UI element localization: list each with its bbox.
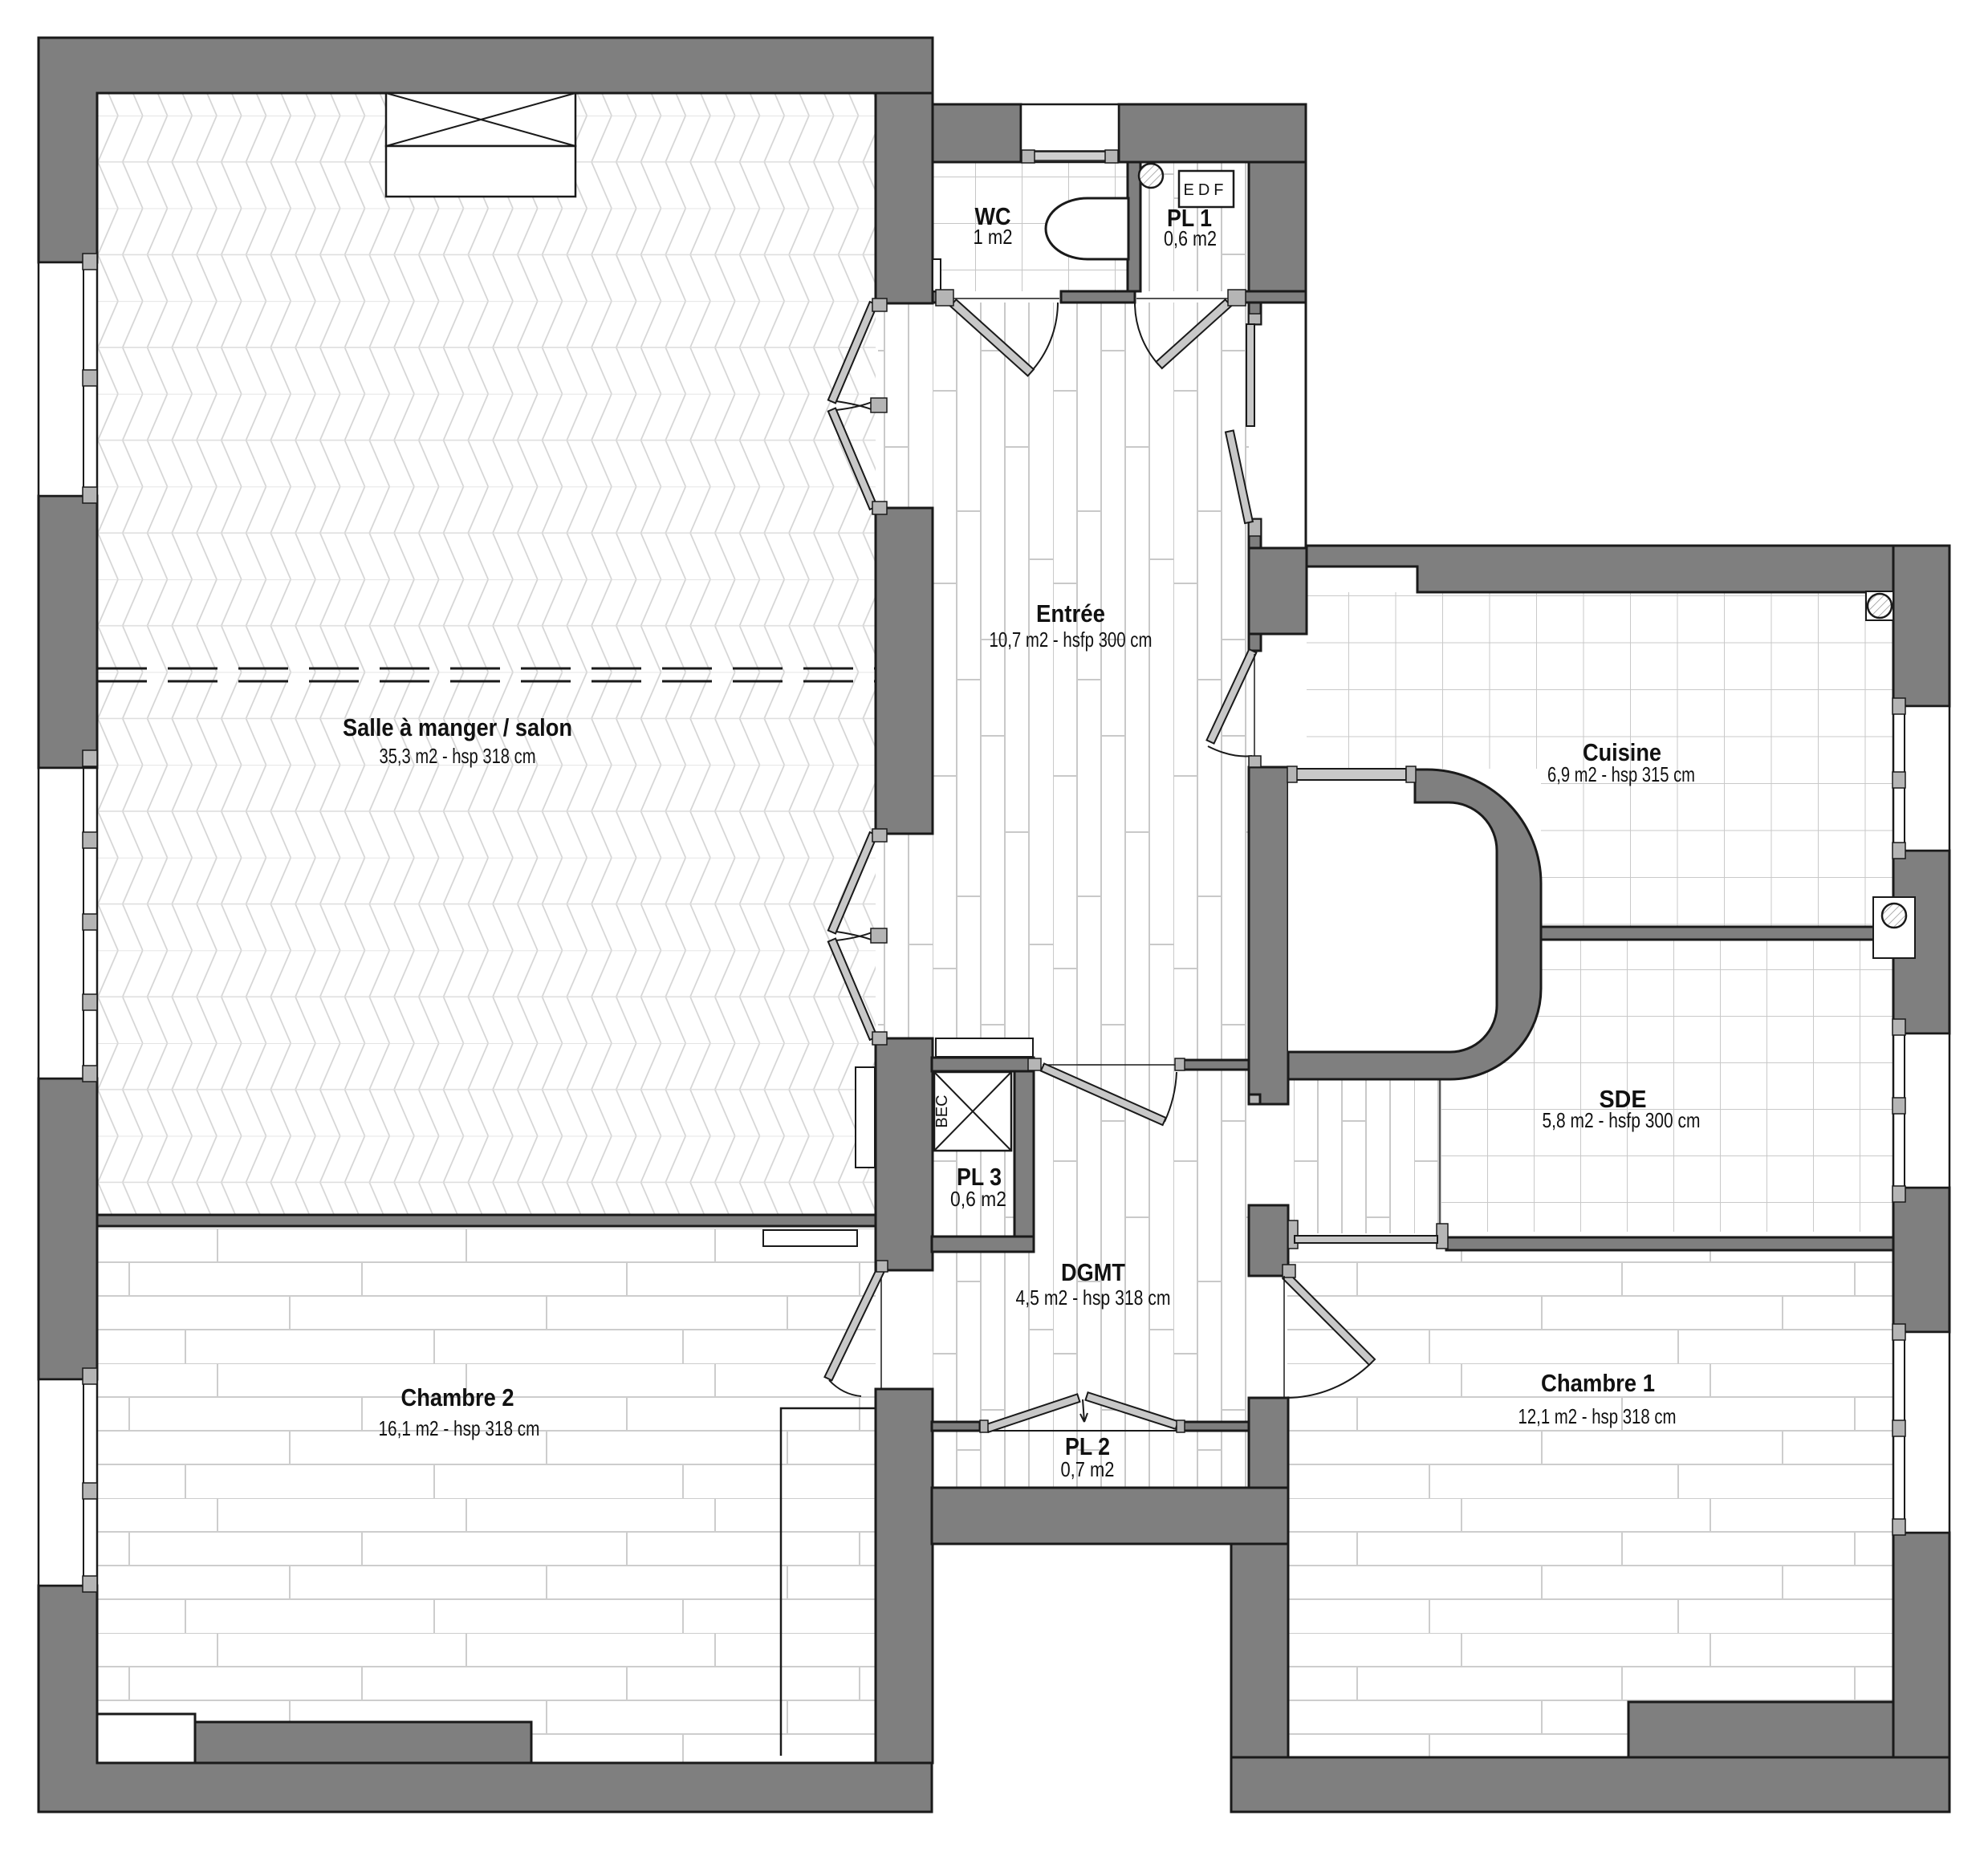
svg-text:Salle à manger / salon: Salle à manger / salon [343,713,572,741]
svg-text:16,1 m2 - hsp 318 cm: 16,1 m2 - hsp 318 cm [379,1416,540,1440]
svg-text:10,7 m2 - hsfp 300 cm: 10,7 m2 - hsfp 300 cm [990,627,1153,652]
svg-text:PL 2: PL 2 [1065,1432,1110,1460]
svg-text:6,9 m2 - hsp 315 cm: 6,9 m2 - hsp 315 cm [1547,762,1695,786]
svg-text:DGMT: DGMT [1061,1258,1125,1286]
svg-text:5,8 m2 - hsfp 300 cm: 5,8 m2 - hsfp 300 cm [1543,1108,1701,1132]
svg-text:Chambre 1: Chambre 1 [1541,1369,1655,1397]
svg-text:0,6 m2: 0,6 m2 [950,1187,1006,1211]
svg-text:EDF: EDF [1184,181,1228,199]
svg-text:4,5 m2 - hsp 318 cm: 4,5 m2 - hsp 318 cm [1016,1285,1171,1310]
svg-text:35,3 m2 - hsp 318 cm: 35,3 m2 - hsp 318 cm [380,744,536,768]
svg-text:Entrée: Entrée [1036,599,1105,627]
svg-text:BEC: BEC [933,1095,951,1127]
svg-text:0,7 m2: 0,7 m2 [1061,1457,1115,1481]
svg-text:0,6 m2: 0,6 m2 [1164,226,1217,250]
svg-text:12,1 m2 - hsp 318 cm: 12,1 m2 - hsp 318 cm [1518,1404,1677,1428]
svg-text:Chambre 2: Chambre 2 [401,1383,514,1411]
svg-text:1 m2: 1 m2 [974,225,1013,249]
